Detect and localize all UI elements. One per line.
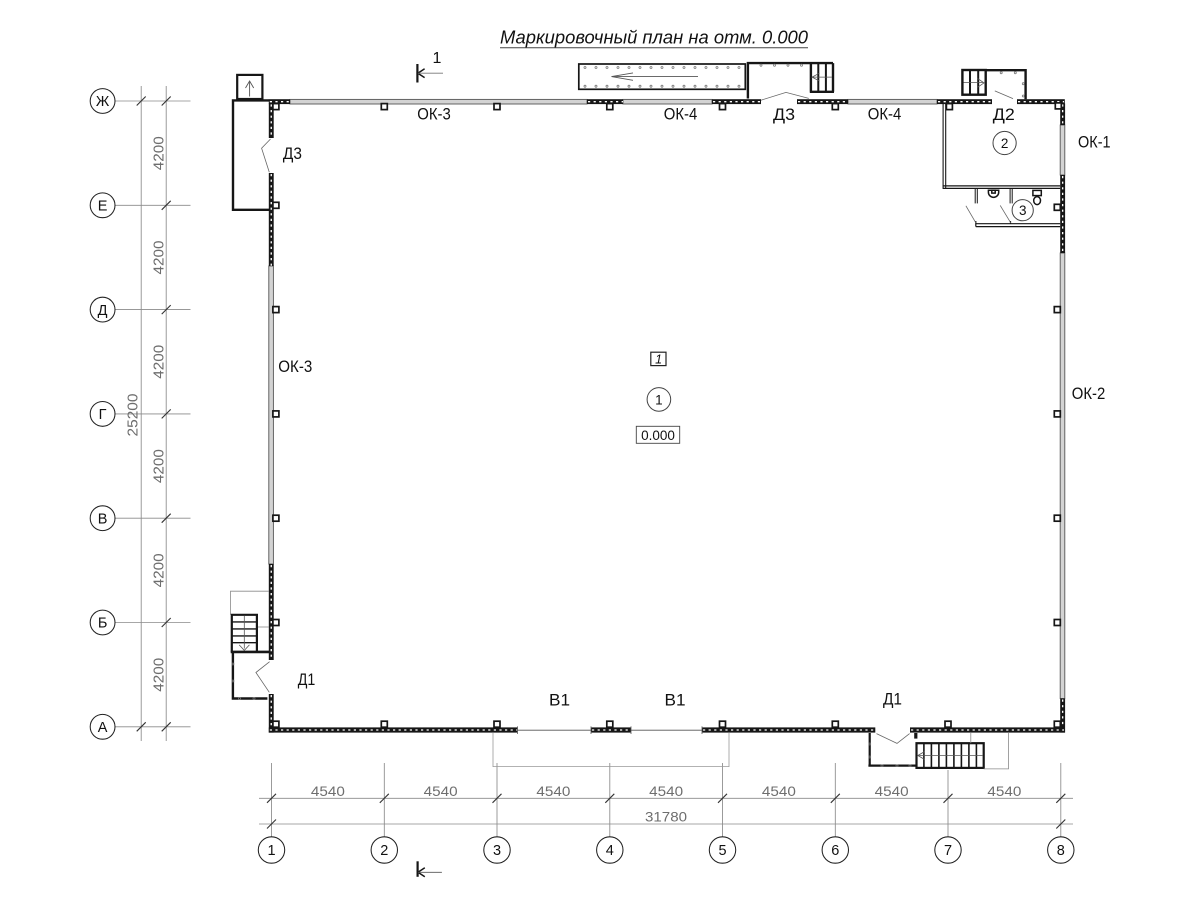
svg-text:ОК-4: ОК-4 (868, 106, 902, 124)
svg-text:4200: 4200 (150, 241, 167, 275)
svg-text:2: 2 (380, 843, 388, 859)
svg-text:5: 5 (718, 843, 726, 859)
svg-text:4200: 4200 (150, 449, 167, 483)
svg-text:ОК-2: ОК-2 (1072, 385, 1106, 403)
svg-text:3: 3 (493, 843, 501, 859)
svg-text:В: В (98, 511, 108, 527)
svg-text:4540: 4540 (536, 783, 570, 799)
svg-text:4: 4 (606, 843, 614, 859)
svg-text:1: 1 (433, 50, 442, 67)
svg-text:4200: 4200 (150, 345, 167, 379)
svg-text:Б: Б (98, 616, 108, 632)
svg-text:ОК-3: ОК-3 (278, 358, 312, 376)
svg-text:ОК-3: ОК-3 (417, 106, 451, 124)
svg-text:0.000: 0.000 (641, 428, 675, 443)
svg-text:1: 1 (267, 843, 275, 859)
svg-text:1: 1 (655, 353, 662, 367)
svg-text:Д1: Д1 (298, 671, 316, 689)
svg-text:Д2: Д2 (993, 106, 1015, 124)
svg-text:4540: 4540 (424, 783, 458, 799)
svg-text:25200: 25200 (125, 394, 142, 437)
svg-text:2: 2 (1001, 136, 1009, 151)
svg-text:Д3: Д3 (283, 145, 302, 163)
svg-text:8: 8 (1057, 843, 1065, 859)
svg-text:Е: Е (98, 199, 108, 215)
svg-text:31780: 31780 (645, 809, 687, 824)
svg-text:ОК-1: ОК-1 (1078, 134, 1111, 152)
svg-text:Д1: Д1 (883, 691, 902, 709)
svg-text:4540: 4540 (987, 783, 1021, 799)
svg-text:7: 7 (944, 843, 952, 859)
svg-text:Маркировочный план на отм. 0.0: Маркировочный план на отм. 0.000 (500, 27, 809, 48)
svg-text:В1: В1 (549, 692, 570, 710)
svg-text:ОК-4: ОК-4 (664, 106, 698, 124)
svg-text:4540: 4540 (311, 783, 345, 799)
svg-text:4540: 4540 (649, 783, 683, 799)
svg-text:3: 3 (1019, 203, 1027, 218)
svg-text:6: 6 (831, 843, 839, 859)
svg-text:1: 1 (655, 392, 663, 407)
svg-text:4540: 4540 (875, 783, 909, 799)
svg-text:4200: 4200 (150, 553, 167, 587)
svg-text:4540: 4540 (762, 783, 796, 799)
svg-text:4200: 4200 (150, 136, 167, 170)
svg-text:Г: Г (99, 407, 107, 423)
svg-text:4200: 4200 (150, 658, 167, 692)
svg-text:Д3: Д3 (773, 106, 795, 124)
svg-text:А: А (98, 720, 108, 736)
svg-text:В1: В1 (665, 692, 686, 710)
svg-text:Д: Д (98, 303, 108, 319)
svg-text:Ж: Ж (96, 94, 110, 110)
